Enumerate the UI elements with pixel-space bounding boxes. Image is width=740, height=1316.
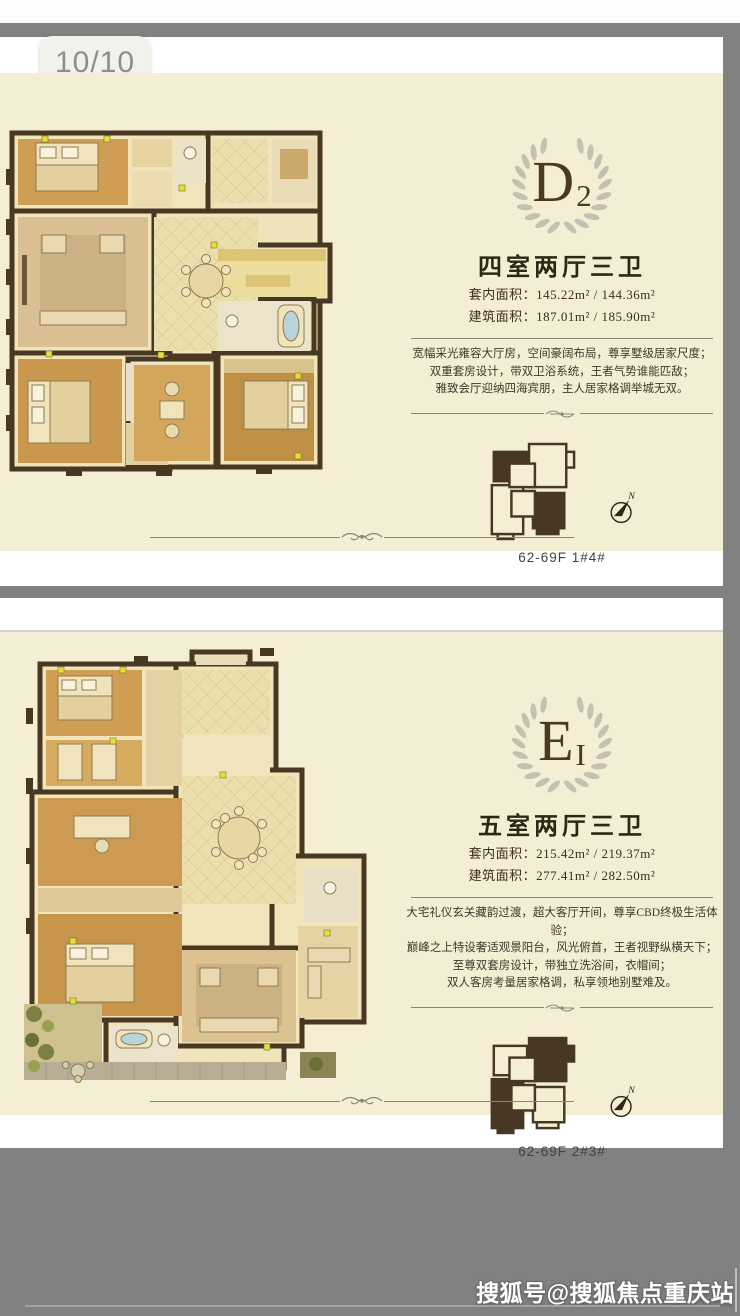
- keyplan-e1: [484, 1036, 578, 1136]
- floorplan-d2-image[interactable]: [6, 123, 338, 484]
- plan-title-e1: 五室两厅三卫: [422, 806, 702, 841]
- scroll-ornament-icon: [340, 530, 384, 544]
- plan-description-line: 大宅礼仪玄关藏韵过渡，超大客厅开间，尊享CBD终极生活体验；: [402, 905, 722, 940]
- scroll-ornament-icon: [340, 1094, 384, 1108]
- plan-description-line: 巅峰之上特设奢适观景阳台，风光俯首，王者视野纵横天下；: [402, 940, 722, 958]
- scrollbar-thumb[interactable]: [735, 1268, 737, 1312]
- floorplan-e1-image[interactable]: [14, 648, 370, 1089]
- floorplan-card-d2[interactable]: D 2 四室两厅三卫 套内面积：145.22m² / 144.36m² 建筑面积…: [0, 73, 723, 551]
- plan-code-d2: D 2: [422, 123, 702, 241]
- floorplan-card-e1[interactable]: E I 五室两厅三卫 套内面积：215.42m² / 219.37m² 建筑面积…: [0, 630, 723, 1115]
- floorplan-d2-drawing: [6, 123, 338, 479]
- build-area-line: 建筑面积：277.41m² / 282.50m²: [412, 867, 712, 885]
- inner-area-line: 套内面积：215.42m² / 219.37m²: [412, 845, 712, 863]
- build-area-line: 建筑面积：187.01m² / 185.90m²: [412, 308, 712, 326]
- inner-area-line: 套内面积：145.22m² / 144.36m²: [412, 286, 712, 304]
- plan-description-line: 双人客房考量居家格调，私享领地别墅难及。: [402, 975, 722, 993]
- compass-n-label: N: [627, 491, 636, 502]
- plan-description-line: 双重套房设计，带双卫浴系统，王者气势谁能匹敌；: [402, 364, 722, 382]
- card-bottom-ornament: [150, 1094, 574, 1108]
- scroll-ornament-icon: [544, 408, 580, 420]
- keyplan-row-e1: N: [422, 1036, 702, 1136]
- ornament-divider: [411, 408, 713, 420]
- plan-description-line: 雅致会厅迎纳四海宾朋，主人居家格调举城无双。: [402, 381, 722, 399]
- plan-code-number: I: [576, 739, 586, 770]
- watermark-text: 搜狐号@搜狐焦点重庆站: [476, 1274, 734, 1308]
- plan-code-letter: E: [538, 712, 573, 770]
- plan-info-panel-d2: D 2 四室两厅三卫 套内面积：145.22m² / 144.36m² 建筑面积…: [402, 73, 722, 565]
- keyplan-d2: [484, 442, 578, 542]
- plan-emblem-d2: D 2: [422, 123, 702, 241]
- divider: [411, 897, 713, 898]
- plan-info-panel-e1: E I 五室两厅三卫 套内面积：215.42m² / 219.37m² 建筑面积…: [402, 632, 722, 1159]
- plan-code-letter: D: [532, 153, 574, 211]
- scroll-track: [25, 1305, 720, 1307]
- compass-icon: N: [604, 1082, 640, 1122]
- compass-n-label: N: [627, 1085, 636, 1096]
- compass-icon: N: [604, 488, 640, 528]
- card-bottom-ornament: [150, 530, 574, 544]
- plan-code-number: 2: [576, 180, 592, 211]
- divider: [411, 338, 713, 339]
- previous-page-edge: [0, 0, 740, 23]
- plan-description-line: 宽幅采光雍容大厅房，空间豪阔布局，尊享墅级居家尺度；: [402, 346, 722, 364]
- floorplan-e1-drawing: [14, 648, 370, 1084]
- plan-emblem-e1: E I: [422, 682, 702, 800]
- plan-code-e1: E I: [422, 682, 702, 800]
- keyplan-row-d2: N: [422, 442, 702, 542]
- scroll-ornament-icon: [544, 1002, 580, 1014]
- plan-title-d2: 四室两厅三卫: [422, 247, 702, 282]
- ornament-divider: [411, 1002, 713, 1014]
- keyplan-label-d2: 62-69F 1#4#: [422, 550, 702, 565]
- plan-description-line: 至尊双套房设计，带独立洗浴间，衣帽间；: [402, 958, 722, 976]
- keyplan-label-e1: 62-69F 2#3#: [422, 1144, 702, 1159]
